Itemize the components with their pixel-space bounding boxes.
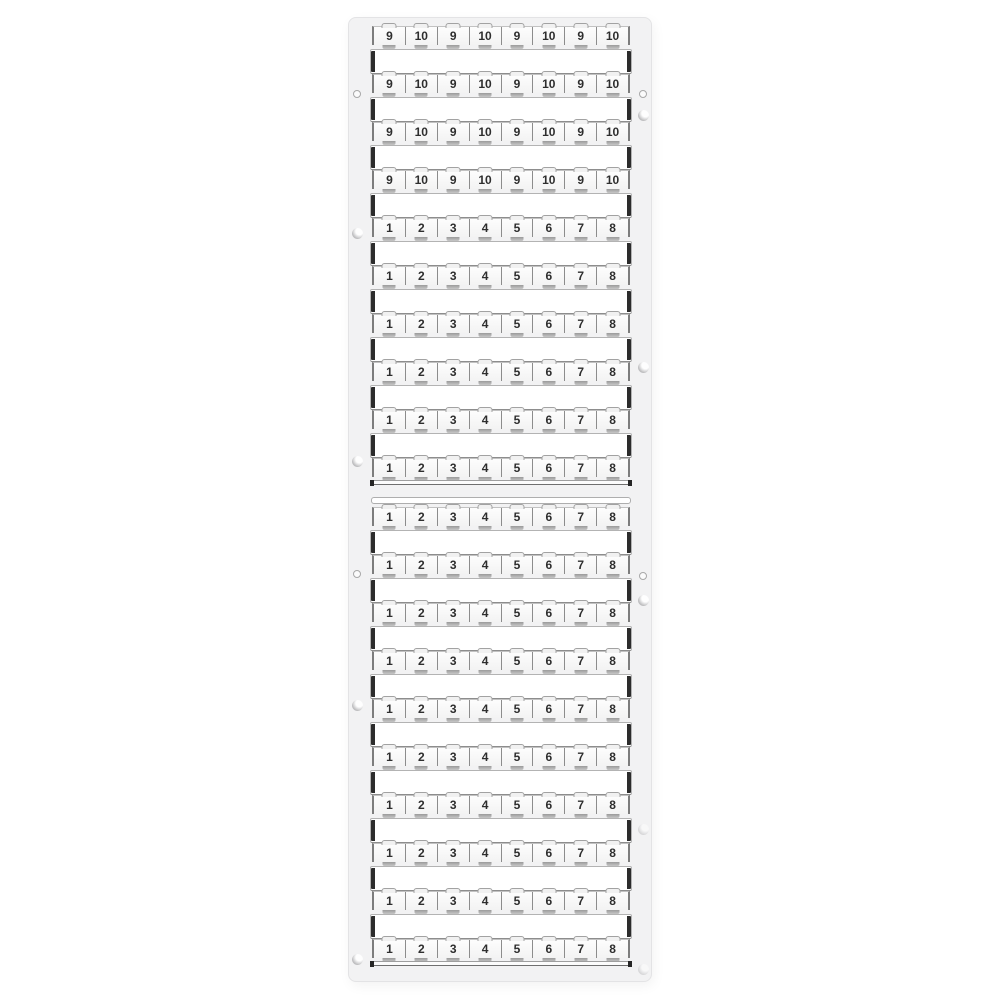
marker-strip-unit: 12345678: [370, 458, 632, 485]
tag-number: 3: [450, 703, 457, 715]
tag-number: 8: [609, 222, 616, 234]
marker-tag: 8: [597, 315, 628, 333]
tag-number: 4: [482, 462, 489, 474]
marker-tag: 5: [502, 411, 534, 429]
tag-number: 2: [418, 751, 425, 763]
tag-number: 10: [542, 78, 555, 90]
marker-tag: 5: [502, 796, 534, 814]
tag-number: 4: [482, 703, 489, 715]
marker-tag: 10: [406, 171, 438, 189]
marker-tag: 3: [438, 556, 470, 574]
tag-number: 5: [514, 511, 521, 523]
tag-number: 8: [609, 462, 616, 474]
marker-tag: 4: [470, 267, 502, 285]
tag-number: 7: [577, 511, 584, 523]
marker-tag: 2: [406, 363, 438, 381]
mounting-hole: [352, 700, 363, 711]
tag-number: 10: [415, 174, 428, 186]
marker-tag: 7: [565, 411, 597, 429]
tag-number: 1: [386, 895, 393, 907]
tag-number: 1: [386, 799, 393, 811]
marker-tag: 7: [565, 844, 597, 862]
marker-row: 12345678: [372, 362, 630, 381]
tag-number: 6: [545, 559, 552, 571]
marker-tag: 8: [597, 700, 628, 718]
marker-row: 12345678: [372, 603, 630, 622]
marker-tag: 2: [406, 844, 438, 862]
blank-strip: [370, 433, 632, 458]
mounting-hole: [353, 90, 361, 98]
marker-tag: 7: [565, 267, 597, 285]
tag-number: 10: [606, 126, 619, 138]
marker-tag: 9: [565, 171, 597, 189]
marker-tag: 2: [406, 652, 438, 670]
marker-strip-unit: 910910910910: [370, 122, 632, 170]
tag-number: 3: [450, 270, 457, 282]
tag-number: 10: [478, 78, 491, 90]
tag-number: 9: [386, 174, 393, 186]
marker-tag: 1: [374, 892, 406, 910]
marker-tag: 4: [470, 844, 502, 862]
tag-number: 3: [450, 607, 457, 619]
tag-number: 9: [450, 126, 457, 138]
marker-tag: 3: [438, 700, 470, 718]
mounting-hole: [639, 572, 647, 580]
marker-tag: 8: [597, 844, 628, 862]
tag-number: 4: [482, 366, 489, 378]
tag-number: 8: [609, 318, 616, 330]
marker-tag: 2: [406, 748, 438, 766]
marker-tag: 7: [565, 219, 597, 237]
tag-number: 7: [577, 751, 584, 763]
marker-tag: 3: [438, 652, 470, 670]
marker-tag: 3: [438, 411, 470, 429]
tag-number: 9: [386, 126, 393, 138]
tag-number: 5: [514, 462, 521, 474]
marker-tag: 5: [502, 748, 534, 766]
tag-number: 6: [545, 847, 552, 859]
marker-strip-unit: 12345678: [370, 410, 632, 458]
marker-tag: 3: [438, 892, 470, 910]
marker-tag: 6: [533, 459, 565, 477]
marker-row: 12345678: [372, 458, 630, 477]
blank-strip: [370, 145, 632, 170]
marker-row: 12345678: [372, 507, 630, 526]
tag-number: 7: [577, 462, 584, 474]
marker-tag: 7: [565, 315, 597, 333]
section-end-strip: [370, 480, 632, 485]
marker-tag: 2: [406, 796, 438, 814]
tag-number: 2: [418, 462, 425, 474]
marker-tag: 7: [565, 748, 597, 766]
tag-number: 2: [418, 270, 425, 282]
marker-tag: 10: [533, 171, 565, 189]
marker-tag: 7: [565, 556, 597, 574]
blank-strip: [370, 578, 632, 603]
tag-number: 4: [482, 751, 489, 763]
marker-tag: 6: [533, 267, 565, 285]
marker-strip-unit: 12345678: [370, 795, 632, 843]
marker-tag: 4: [470, 556, 502, 574]
marker-section-top: 9109109109109109109109109109109109109109…: [370, 18, 632, 485]
tag-number: 4: [482, 607, 489, 619]
marker-row: 12345678: [372, 747, 630, 766]
tag-number: 8: [609, 414, 616, 426]
tag-number: 8: [609, 847, 616, 859]
marker-tag: 1: [374, 700, 406, 718]
marker-tag: 6: [533, 363, 565, 381]
mounting-hole: [638, 595, 649, 606]
marker-tag: 6: [533, 940, 565, 958]
marker-tag: 7: [565, 796, 597, 814]
marker-tag: 10: [406, 123, 438, 141]
marker-tag: 10: [597, 123, 628, 141]
marker-tag: 8: [597, 508, 628, 526]
marker-strip-unit: 910910910910: [370, 26, 632, 74]
tag-number: 9: [450, 174, 457, 186]
marker-tag: 5: [502, 604, 534, 622]
marker-tag: 8: [597, 940, 628, 958]
tag-number: 6: [545, 607, 552, 619]
marker-row: 12345678: [372, 795, 630, 814]
marker-tag: 5: [502, 892, 534, 910]
marker-tag: 5: [502, 267, 534, 285]
blank-strip: [370, 530, 632, 555]
marker-strip-unit: 12345678: [370, 651, 632, 699]
marker-tag: 9: [438, 75, 470, 93]
tag-number: 5: [514, 943, 521, 955]
tag-number: 10: [542, 126, 555, 138]
marker-row: 910910910910: [372, 122, 630, 141]
tag-number: 7: [577, 366, 584, 378]
tag-number: 7: [577, 943, 584, 955]
marker-row: 12345678: [372, 410, 630, 429]
tag-number: 7: [577, 270, 584, 282]
marker-tag: 2: [406, 604, 438, 622]
marker-strip-unit: 910910910910: [370, 170, 632, 218]
marker-row: 12345678: [372, 699, 630, 718]
marker-tag: 7: [565, 363, 597, 381]
tag-number: 8: [609, 943, 616, 955]
marker-tag: 6: [533, 892, 565, 910]
tag-number: 7: [577, 799, 584, 811]
tag-number: 6: [545, 318, 552, 330]
marker-tag: 10: [470, 27, 502, 45]
tag-number: 4: [482, 270, 489, 282]
marker-tag: 2: [406, 892, 438, 910]
tag-number: 6: [545, 511, 552, 523]
blank-strip: [370, 97, 632, 122]
tag-number: 10: [542, 174, 555, 186]
marker-row: 910910910910: [372, 74, 630, 93]
mounting-hole: [352, 456, 363, 467]
tag-number: 2: [418, 559, 425, 571]
marker-row: 12345678: [372, 555, 630, 574]
tag-number: 1: [386, 943, 393, 955]
marker-tag: 10: [597, 27, 628, 45]
tag-number: 10: [478, 126, 491, 138]
mounting-hole: [352, 954, 363, 965]
tag-number: 2: [418, 943, 425, 955]
tag-number: 2: [418, 703, 425, 715]
tag-number: 6: [545, 655, 552, 667]
marker-tag: 5: [502, 844, 534, 862]
marker-tag: 9: [565, 123, 597, 141]
tag-number: 2: [418, 366, 425, 378]
tag-number: 9: [450, 30, 457, 42]
tag-number: 1: [386, 703, 393, 715]
marker-tag: 9: [502, 27, 534, 45]
marker-tag: 2: [406, 411, 438, 429]
blank-strip: [370, 818, 632, 843]
marker-tag: 10: [470, 171, 502, 189]
tag-number: 4: [482, 559, 489, 571]
tag-number: 9: [386, 78, 393, 90]
tag-number: 5: [514, 607, 521, 619]
marker-tag: 9: [438, 171, 470, 189]
tag-number: 4: [482, 222, 489, 234]
marker-row: 910910910910: [372, 26, 630, 45]
tag-number: 6: [545, 414, 552, 426]
marker-tag: 8: [597, 556, 628, 574]
marker-tag: 3: [438, 459, 470, 477]
marker-tag: 4: [470, 363, 502, 381]
marker-tag: 1: [374, 459, 406, 477]
tag-number: 1: [386, 511, 393, 523]
marker-tag: 1: [374, 411, 406, 429]
marker-tag: 1: [374, 556, 406, 574]
tag-number: 5: [514, 847, 521, 859]
tag-number: 5: [514, 655, 521, 667]
marker-tag: 3: [438, 315, 470, 333]
tag-number: 2: [418, 222, 425, 234]
tag-number: 1: [386, 222, 393, 234]
marker-tag: 7: [565, 652, 597, 670]
tag-number: 1: [386, 366, 393, 378]
tag-number: 4: [482, 414, 489, 426]
tag-number: 9: [514, 78, 521, 90]
marker-tag: 10: [533, 75, 565, 93]
marker-tag: 4: [470, 700, 502, 718]
marker-tag: 5: [502, 459, 534, 477]
tag-number: 3: [450, 559, 457, 571]
marker-tag: 1: [374, 796, 406, 814]
tag-number: 5: [514, 559, 521, 571]
tag-number: 3: [450, 895, 457, 907]
tag-number: 3: [450, 414, 457, 426]
tag-number: 4: [482, 318, 489, 330]
tag-number: 1: [386, 607, 393, 619]
tag-number: 8: [609, 895, 616, 907]
marker-tag: 1: [374, 315, 406, 333]
marker-tag: 3: [438, 508, 470, 526]
tag-number: 2: [418, 799, 425, 811]
tag-number: 8: [609, 607, 616, 619]
marker-row: 12345678: [372, 843, 630, 862]
tag-number: 4: [482, 895, 489, 907]
marker-tag: 6: [533, 796, 565, 814]
marker-tag: 3: [438, 748, 470, 766]
tag-number: 1: [386, 847, 393, 859]
marker-tag: 9: [502, 75, 534, 93]
marker-row: 12345678: [372, 218, 630, 237]
tag-number: 1: [386, 462, 393, 474]
marker-tag: 4: [470, 748, 502, 766]
marker-row: 12345678: [372, 891, 630, 910]
tag-number: 4: [482, 655, 489, 667]
blank-strip: [370, 626, 632, 651]
marker-tag: 4: [470, 315, 502, 333]
marker-tag: 4: [470, 411, 502, 429]
marker-tag: 2: [406, 556, 438, 574]
tag-number: 7: [577, 414, 584, 426]
marker-tag: 4: [470, 940, 502, 958]
tag-number: 2: [418, 847, 425, 859]
marker-tag: 6: [533, 315, 565, 333]
tag-number: 10: [415, 78, 428, 90]
tag-number: 1: [386, 559, 393, 571]
marker-card-frame: 9109109109109109109109109109109109109109…: [348, 17, 652, 982]
marker-tag: 8: [597, 892, 628, 910]
marker-tag: 1: [374, 219, 406, 237]
tag-number: 7: [577, 655, 584, 667]
tag-number: 10: [478, 174, 491, 186]
tag-number: 3: [450, 222, 457, 234]
tag-number: 3: [450, 318, 457, 330]
marker-strip-unit: 12345678: [370, 747, 632, 795]
marker-tag: 3: [438, 267, 470, 285]
marker-tag: 2: [406, 459, 438, 477]
tag-number: 8: [609, 655, 616, 667]
tag-number: 7: [577, 559, 584, 571]
marker-tag: 6: [533, 556, 565, 574]
card-content: 9109109109109109109109109109109109109109…: [370, 18, 632, 966]
tag-number: 1: [386, 318, 393, 330]
marker-tag: 7: [565, 700, 597, 718]
marker-tag: 5: [502, 219, 534, 237]
marker-tag: 8: [597, 652, 628, 670]
marker-strip-unit: 12345678: [370, 507, 632, 555]
tag-number: 1: [386, 655, 393, 667]
marker-tag: 3: [438, 940, 470, 958]
marker-strip-unit: 12345678: [370, 266, 632, 314]
marker-tag: 4: [470, 604, 502, 622]
marker-tag: 2: [406, 940, 438, 958]
tag-number: 7: [577, 703, 584, 715]
marker-tag: 4: [470, 459, 502, 477]
marker-tag: 9: [502, 171, 534, 189]
marker-tag: 4: [470, 508, 502, 526]
marker-tag: 10: [406, 27, 438, 45]
section-cap-strip: [371, 497, 631, 504]
tag-number: 3: [450, 847, 457, 859]
tag-number: 8: [609, 703, 616, 715]
marker-tag: 9: [565, 75, 597, 93]
tag-number: 8: [609, 511, 616, 523]
blank-strip: [370, 866, 632, 891]
marker-tag: 8: [597, 267, 628, 285]
marker-tag: 5: [502, 363, 534, 381]
marker-tag: 5: [502, 556, 534, 574]
marker-tag: 7: [565, 940, 597, 958]
marker-row: 12345678: [372, 939, 630, 958]
marker-tag: 2: [406, 219, 438, 237]
tag-number: 5: [514, 366, 521, 378]
tag-number: 1: [386, 270, 393, 282]
tag-number: 3: [450, 511, 457, 523]
product-photo-canvas: 9109109109109109109109109109109109109109…: [0, 0, 1000, 1000]
tag-number: 2: [418, 607, 425, 619]
tag-number: 9: [577, 174, 584, 186]
marker-row: 12345678: [372, 314, 630, 333]
marker-tag: 6: [533, 700, 565, 718]
marker-tag: 6: [533, 652, 565, 670]
marker-strip-unit: 12345678: [370, 218, 632, 266]
marker-strip-unit: 12345678: [370, 939, 632, 966]
tag-number: 8: [609, 559, 616, 571]
tag-number: 7: [577, 222, 584, 234]
tag-number: 6: [545, 462, 552, 474]
blank-strip: [370, 722, 632, 747]
tag-number: 6: [545, 799, 552, 811]
marker-tag: 3: [438, 604, 470, 622]
marker-tag: 5: [502, 315, 534, 333]
marker-tag: 7: [565, 459, 597, 477]
tag-number: 10: [478, 30, 491, 42]
tag-number: 2: [418, 511, 425, 523]
mounting-hole: [639, 90, 647, 98]
tag-number: 3: [450, 462, 457, 474]
tag-number: 3: [450, 751, 457, 763]
tag-number: 7: [577, 847, 584, 859]
tag-number: 5: [514, 222, 521, 234]
marker-tag: 1: [374, 363, 406, 381]
marker-tag: 4: [470, 219, 502, 237]
marker-tag: 8: [597, 604, 628, 622]
marker-tag: 6: [533, 508, 565, 526]
marker-strip-unit: 12345678: [370, 555, 632, 603]
marker-tag: 10: [470, 75, 502, 93]
tag-number: 5: [514, 895, 521, 907]
marker-tag: 3: [438, 796, 470, 814]
tag-number: 10: [606, 30, 619, 42]
marker-tag: 9: [374, 171, 406, 189]
blank-strip: [370, 289, 632, 314]
marker-tag: 10: [597, 171, 628, 189]
blank-strip: [370, 914, 632, 939]
marker-tag: 1: [374, 652, 406, 670]
marker-tag: 10: [533, 123, 565, 141]
tag-number: 10: [542, 30, 555, 42]
blank-strip: [370, 193, 632, 218]
tag-number: 2: [418, 895, 425, 907]
marker-tag: 1: [374, 508, 406, 526]
tag-number: 9: [514, 30, 521, 42]
marker-tag: 9: [374, 75, 406, 93]
marker-strip-unit: 12345678: [370, 362, 632, 410]
tag-number: 3: [450, 943, 457, 955]
tag-number: 5: [514, 270, 521, 282]
tag-number: 10: [606, 78, 619, 90]
marker-tag: 8: [597, 411, 628, 429]
tag-number: 1: [386, 414, 393, 426]
tag-number: 3: [450, 799, 457, 811]
tag-number: 8: [609, 799, 616, 811]
tag-number: 7: [577, 318, 584, 330]
marker-strip-unit: 12345678: [370, 843, 632, 891]
tag-number: 2: [418, 655, 425, 667]
marker-tag: 8: [597, 748, 628, 766]
